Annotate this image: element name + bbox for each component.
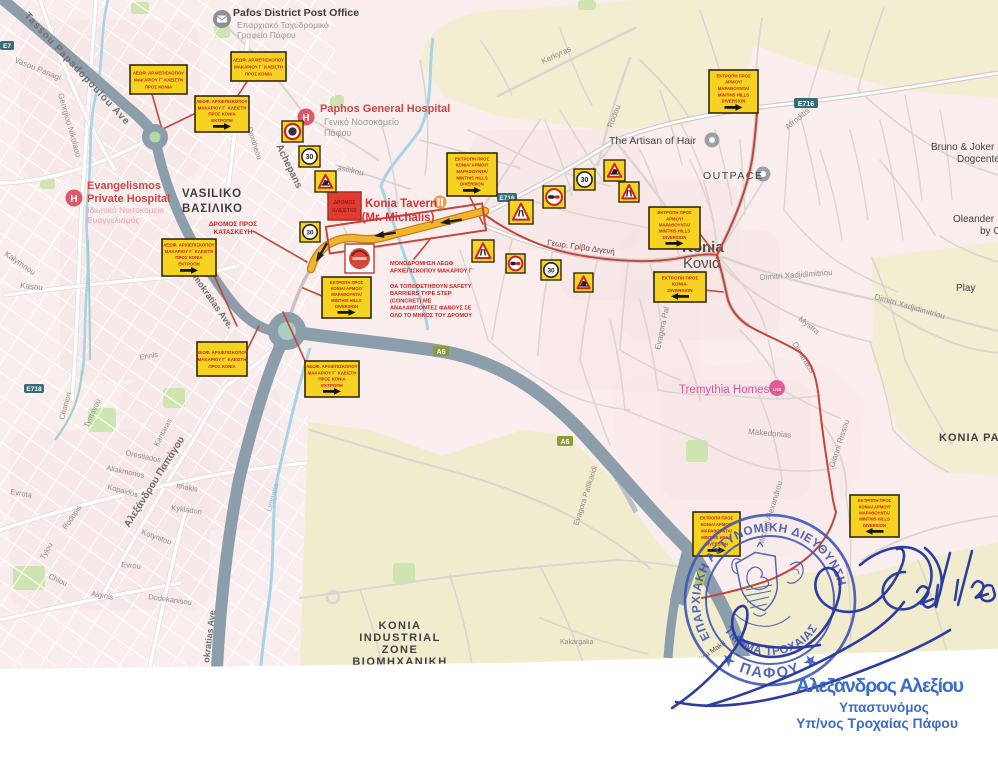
svg-text:ΕΚΤΡΟΠΗ ΠΡΟΣ: ΕΚΤΡΟΠΗ ΠΡΟΣ (662, 275, 699, 280)
svg-text:ΑΡΜΟΥ/: ΑΡΜΟΥ/ (666, 216, 684, 221)
svg-text:ΜΑΡΑΘΟΥΝΤΑ/: ΜΑΡΑΘΟΥΝΤΑ/ (718, 86, 750, 91)
svg-text:DIVERSION: DIVERSION (722, 99, 746, 104)
svg-text:ΜΑΚΑΡΙΟΥ Γ΄ ΚΛΕΙΣΤΗ: ΜΑΚΑΡΙΟΥ Γ΄ ΚΛΕΙΣΤΗ (165, 249, 214, 254)
svg-text:ΠΡΟΣ ΚΟΝΙΑ: ΠΡΟΣ ΚΟΝΙΑ (245, 72, 273, 77)
svg-text:ΕΚΤΡΟΠΗ ΠΡΟΣ: ΕΚΤΡΟΠΗ ΠΡΟΣ (858, 498, 892, 503)
svg-text:Γραφείο Πάφου: Γραφείο Πάφου (237, 30, 296, 40)
svg-text:by C: by C (980, 226, 998, 237)
svg-text:A6: A6 (437, 349, 446, 356)
svg-text:ΚΟΝΙΑ/ ΑΡΜΟΥ/: ΚΟΝΙΑ/ ΑΡΜΟΥ/ (331, 286, 364, 291)
svg-text:VASILIKO: VASILIKO (182, 188, 242, 200)
svg-text:ΕΚΤΡΟΠΗ: ΕΚΤΡΟΠΗ (321, 383, 342, 388)
svg-text:30: 30 (306, 154, 314, 161)
svg-text:DIVERSION: DIVERSION (335, 304, 358, 309)
svg-text:ΚΟΝΙΑ-: ΚΟΝΙΑ- (672, 282, 689, 287)
svg-text:MINTHIS HILLS: MINTHIS HILLS (659, 229, 690, 234)
svg-text:ΜΑΡΑΘΟΥΝΤΑ/: ΜΑΡΑΘΟΥΝΤΑ/ (659, 223, 691, 228)
svg-text:30: 30 (581, 177, 589, 184)
svg-text:Play: Play (956, 283, 975, 294)
svg-text:ΛΕΩΦ. ΑΡΧΙΕΠΙΣΚΟΠΟΥ: ΛΕΩΦ. ΑΡΧΙΕΠΙΣΚΟΠΟΥ (163, 242, 214, 247)
svg-text:(Mr. Michalis): (Mr. Michalis) (362, 212, 435, 224)
svg-text:ΚΟΝΙΑ/ ΑΡΜΟΥ/: ΚΟΝΙΑ/ ΑΡΜΟΥ/ (859, 504, 892, 509)
svg-text:ΑΡΜΟΥ/: ΑΡΜΟΥ/ (725, 80, 743, 85)
svg-text:OUTPACE: OUTPACE (703, 170, 763, 182)
svg-text:Evrou: Evrou (121, 560, 141, 571)
svg-text:ΚΛΕΙΣΤΟΣ: ΚΛΕΙΣΤΟΣ (332, 208, 357, 214)
svg-text:MINTHIS HILLS: MINTHIS HILLS (859, 517, 890, 522)
svg-text:MINTHIS HILLS: MINTHIS HILLS (718, 92, 749, 97)
svg-text:Επαρχιακό Ταχυδρομικό: Επαρχιακό Ταχυδρομικό (237, 20, 329, 30)
svg-text:Konia Tavern: Konia Tavern (365, 198, 437, 210)
svg-text:ΕΚΤΡΟΠΗ ΠΡΟΣ: ΕΚΤΡΟΠΗ ΠΡΟΣ (700, 516, 734, 521)
svg-text:ΛΕΩΦ. ΑΡΧΙΕΠΙΣΚΟΠΟΥ: ΛΕΩΦ. ΑΡΧΙΕΠΙΣΚΟΠΟΥ (233, 58, 284, 63)
svg-text:Kakargaka: Kakargaka (560, 639, 594, 646)
svg-text:INDUSTRIAL: INDUSTRIAL (359, 632, 441, 644)
svg-text:Γενικό Νοσοκομείο: Γενικό Νοσοκομείο (324, 117, 399, 127)
svg-text:DIVERSION: DIVERSION (667, 288, 693, 293)
svg-text:30: 30 (306, 229, 314, 236)
svg-text:ΛΕΩΦ. ΑΡΧΙΕΠΙΣΚΟΠΟΥ: ΛΕΩΦ. ΑΡΧΙΕΠΙΣΚΟΠΟΥ (306, 364, 357, 369)
svg-text:E718: E718 (26, 386, 42, 393)
svg-text:ΕΚΤΡΟΠΗ: ΕΚΤΡΟΠΗ (211, 118, 232, 123)
svg-text:ΜΑΡΑΘΟΥΝΤΑ/: ΜΑΡΑΘΟΥΝΤΑ/ (859, 511, 890, 516)
svg-text:ΜΑΡΑΘΟΥΝΤΑ/: ΜΑΡΑΘΟΥΝΤΑ/ (456, 169, 488, 174)
svg-text:H: H (70, 194, 77, 205)
svg-text:ΛΕΩΦ. ΑΡΧΙΕΠΙΣΚΟΠΟΥ: ΛΕΩΦ. ΑΡΧΙΕΠΙΣΚΟΠΟΥ (133, 71, 184, 76)
svg-text:ΚΟΝΙΑ/ ΑΡΜΟΥ/: ΚΟΝΙΑ/ ΑΡΜΟΥ/ (456, 163, 490, 168)
svg-text:A6: A6 (561, 439, 570, 446)
svg-text:ΜΟΝΟΔΡΟΜΗΣΗ ΛΕΩΦ: ΜΟΝΟΔΡΟΜΗΣΗ ΛΕΩΦ (390, 261, 454, 267)
svg-text:ΒΑΣΙΛΙΚΟ: ΒΑΣΙΛΙΚΟ (182, 203, 243, 215)
svg-text:Πάφου: Πάφου (324, 128, 352, 138)
svg-text:ΜΑΚΑΡΙΟΥ Γ΄ ΚΛΕΙΣΤΗ: ΜΑΚΑΡΙΟΥ Γ΄ ΚΛΕΙΣΤΗ (308, 370, 357, 375)
svg-text:The Artisan of Hair: The Artisan of Hair (609, 135, 696, 147)
svg-text:Evangelismos: Evangelismos (87, 180, 161, 192)
svg-text:MINTHIS HILLS: MINTHIS HILLS (456, 175, 487, 180)
svg-text:ΜΑΡΑΘΟΥΝΤΑ/: ΜΑΡΑΘΟΥΝΤΑ/ (331, 292, 362, 297)
svg-text:DIVERSION: DIVERSION (663, 235, 687, 240)
svg-text:ΘΑ ΤΟΠΟΘΕΤΗΘΟΥΝ SAFETY: ΘΑ ΤΟΠΟΘΕΤΗΘΟΥΝ SAFETY (390, 284, 472, 290)
svg-text:ΠΡΟΣ ΚΟΝΙΑ: ΠΡΟΣ ΚΟΝΙΑ (145, 85, 173, 90)
svg-text:ΕΚΤΡΟΠΗ ΠΡΟΣ: ΕΚΤΡΟΠΗ ΠΡΟΣ (330, 280, 364, 285)
svg-text:Bruno & Joker: Bruno & Joker (931, 142, 995, 153)
svg-text:Private Hospital: Private Hospital (87, 193, 170, 205)
svg-text:ΜΑΚΑΡΙΟΥ Γ΄ ΚΛΕΙΣΤΗ: ΜΑΚΑΡΙΟΥ Γ΄ ΚΛΕΙΣΤΗ (198, 105, 247, 110)
svg-text:ΑΡΧΙΕΠΙΣΚΟΠΟΥ ΜΑΚΑΡΙΟΥ Γ΄: ΑΡΧΙΕΠΙΣΚΟΠΟΥ ΜΑΚΑΡΙΟΥ Γ΄ (390, 269, 474, 275)
svg-text:KONIA: KONIA (379, 620, 422, 632)
svg-text:ΠΡΟΣ ΚΟΝΙΑ: ΠΡΟΣ ΚΟΝΙΑ (318, 377, 346, 382)
svg-text:LNB: LNB (773, 387, 782, 392)
svg-text:ΜΑΚΑΡΙΟΥ Γ΄ ΚΛΕΙΣΤΗ: ΜΑΚΑΡΙΟΥ Γ΄ ΚΛΕΙΣΤΗ (134, 78, 183, 83)
svg-text:DIVERSION: DIVERSION (863, 523, 886, 528)
svg-text:ΛΕΩΦ. ΑΡΧΙΕΠΙΣΚΟΠΟΥ: ΛΕΩΦ. ΑΡΧΙΕΠΙΣΚΟΠΟΥ (196, 99, 247, 104)
svg-text:ΑΝΑΛΑΜΠΟΝΤΕΣ ΦΑΝΟΥΣ ΣΕ: ΑΝΑΛΑΜΠΟΝΤΕΣ ΦΑΝΟΥΣ ΣΕ (390, 306, 472, 312)
svg-text:ΔΡΟΜΟΣ: ΔΡΟΜΟΣ (334, 200, 356, 206)
svg-text:MINTHIS HILLS: MINTHIS HILLS (331, 298, 362, 303)
svg-text:(CONCRET) ΜΕ: (CONCRET) ΜΕ (390, 298, 432, 304)
svg-text:BARRIERS TYPE STEP: BARRIERS TYPE STEP (390, 291, 452, 297)
svg-text:Υπ/νος Τροχαίας Πάφου: Υπ/νος Τροχαίας Πάφου (796, 715, 958, 731)
svg-text:Oleander: Oleander (953, 214, 995, 225)
svg-text:Dogcente: Dogcente (957, 154, 998, 165)
svg-text:Αλεξάνδρος Αλεξίου: Αλεξάνδρος Αλεξίου (796, 675, 964, 697)
svg-text:ΚΑΤΑΣΚΕΥΗ: ΚΑΤΑΣΚΕΥΗ (214, 229, 253, 236)
svg-text:ΠΡΟΣ ΚΟΝΙΑ: ΠΡΟΣ ΚΟΝΙΑ (208, 112, 236, 117)
svg-text:Paphos General Hospital: Paphos General Hospital (320, 103, 450, 115)
svg-text:ΕΚΤΡΟΠΗ ΠΡΟΣ: ΕΚΤΡΟΠΗ ΠΡΟΣ (716, 73, 751, 78)
svg-text:ΕΚΤΡΟΠΗ ΠΡΟΣ: ΕΚΤΡΟΠΗ ΠΡΟΣ (657, 210, 692, 215)
svg-text:ΜΑΚΑΡΙΟΥ Γ΄ ΚΛΕΙΣΤΗ: ΜΑΚΑΡΙΟΥ Γ΄ ΚΛΕΙΣΤΗ (234, 65, 283, 70)
svg-text:Pafos District Post Office: Pafos District Post Office (233, 7, 359, 19)
svg-text:ΠΡΟΣ ΚΟΝΙΑ: ΠΡΟΣ ΚΟΝΙΑ (208, 364, 236, 369)
svg-text:Υπαστυνόμος: Υπαστυνόμος (839, 700, 929, 715)
svg-text:Κονιά: Κονιά (683, 255, 721, 272)
svg-text:ΕΚΤΡΟΠΗ: ΕΚΤΡΟΠΗ (178, 262, 199, 267)
svg-text:DIVERSION: DIVERSION (460, 182, 484, 187)
svg-text:ZONE: ZONE (382, 644, 419, 656)
svg-text:KONIA PAR: KONIA PAR (939, 432, 998, 444)
svg-text:ΕΚΤΡΟΠΗ ΠΡΟΣ: ΕΚΤΡΟΠΗ ΠΡΟΣ (455, 156, 490, 161)
svg-text:Tremythia Homes: Tremythia Homes (679, 384, 770, 396)
svg-text:ΛΕΩΦ. ΑΡΧΙΕΠΙΣΚΟΠΟΥ: ΛΕΩΦ. ΑΡΧΙΕΠΙΣΚΟΠΟΥ (196, 350, 247, 355)
svg-text:ΜΑΚΑΡΙΟΥ Γ΄ ΚΛΕΙΣΤΗ: ΜΑΚΑΡΙΟΥ Γ΄ ΚΛΕΙΣΤΗ (198, 357, 247, 362)
svg-text:ΟΛΟ ΤΟ ΜΗΚΟΣ ΤΟΥ ΔΡΟΜΟΥ: ΟΛΟ ΤΟ ΜΗΚΟΣ ΤΟΥ ΔΡΟΜΟΥ (390, 313, 472, 319)
svg-text:30: 30 (547, 267, 555, 274)
svg-text:E7: E7 (3, 43, 11, 50)
svg-text:Ιδιωτικό Νοσοκομείο: Ιδιωτικό Νοσοκομείο (87, 205, 164, 215)
svg-text:ΔΡΟΜΟΣ ΠΡΟΣ: ΔΡΟΜΟΣ ΠΡΟΣ (209, 221, 257, 228)
svg-text:E716: E716 (798, 101, 814, 108)
svg-text:ΠΡΟΣ ΚΟΝΙΑ: ΠΡΟΣ ΚΟΝΙΑ (175, 255, 203, 260)
svg-text:Ευαγγελισμός: Ευαγγελισμός (87, 215, 140, 225)
